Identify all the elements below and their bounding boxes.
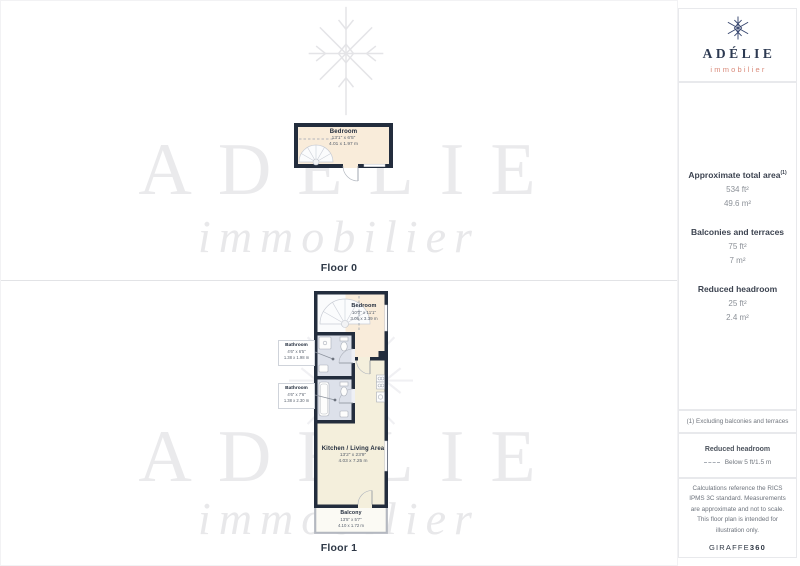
giraffe360-number: 360 (750, 543, 766, 552)
brand-name: ADÉLIE (679, 46, 796, 62)
legend-row: Below 5 ft/1.5 m (704, 459, 772, 466)
reduced-headroom-group: Reduced headroom 25 ft² 2.4 m² (698, 284, 777, 322)
room-dims-ft: 13'5" x 5'7" (314, 517, 388, 522)
legend-box: Reduced headroom Below 5 ft/1.5 m (678, 433, 797, 478)
callout-bathroom2: Bathroom 4'6" x 7'6" 1.38 x 2.30 m (278, 383, 315, 409)
room-dims-m: 4.01 x 1.97 m (294, 142, 393, 147)
reduced-headroom-title: Reduced headroom (698, 284, 777, 294)
room-dims-ft: 10'0" x 11'1" (342, 310, 386, 315)
reduced-headroom-ft: 25 ft² (698, 299, 777, 308)
window (364, 164, 385, 166)
room-label-balcony: Balcony 13'5" x 5'7" 4.10 x 1.72 m (314, 510, 388, 528)
total-area-footnote-marker: (1) (781, 170, 787, 176)
total-area-m: 49.6 m² (688, 199, 786, 208)
floorplan-area: ADÉLIE immobilier (0, 0, 678, 566)
room-name: Bedroom (294, 129, 393, 135)
kitchen-fixtures (377, 375, 385, 402)
room-name: Bedroom (342, 303, 386, 309)
total-area-group: Approximate total area(1) 534 ft² 49.6 m… (688, 170, 786, 208)
balconies-title: Balconies and terraces (691, 227, 784, 237)
reduced-headroom-m: 2.4 m² (698, 313, 777, 322)
room-dims-ft: 13'1" x 6'5" (294, 136, 393, 141)
total-area-title: Approximate total area(1) (688, 170, 786, 180)
room-dims-ft: 4'6" x 6'5" (279, 349, 314, 354)
disclaimer-text: Calculations reference the RICS IPMS 3C … (686, 484, 789, 536)
room-name: Kitchen / Living Area (320, 446, 386, 452)
callout-bathroom1: Bathroom 4'6" x 6'5" 1.38 x 1.98 m (278, 340, 315, 366)
disclaimer-box: Calculations reference the RICS IPMS 3C … (678, 478, 797, 558)
watermark-brand-tagline: immobilier (1, 214, 677, 260)
floor1-panel: ADÉLIE immobilier (1, 282, 677, 566)
room-dims-m: 4.10 x 1.72 m (314, 523, 388, 528)
room-name: Balcony (314, 510, 388, 516)
room-dims-m: 1.38 x 1.98 m (279, 355, 314, 360)
room-name: Bathroom (279, 386, 314, 391)
balconies-group: Balconies and terraces 75 ft² 7 m² (691, 227, 784, 265)
room-label-kitchen-living: Kitchen / Living Area 13'2" x 23'9" 4.03… (320, 446, 386, 464)
floor0-door (343, 164, 358, 181)
dashed-line-icon (704, 462, 720, 463)
balconies-ft: 75 ft² (691, 242, 784, 251)
area-summary-box: Approximate total area(1) 534 ft² 49.6 m… (678, 82, 797, 410)
legend-title: Reduced headroom (705, 446, 770, 453)
room-label-bedroom-floor1: Bedroom 10'0" x 11'1" 3.06 x 3.39 m (342, 303, 386, 321)
floor1-balcony: Balcony 13'5" x 5'7" 4.10 x 1.72 m (314, 508, 388, 534)
room-label-bedroom-floor0: Bedroom 13'1" x 6'5" 4.01 x 1.97 m (294, 129, 393, 147)
brand-logo-box: ADÉLIE immobilier (678, 8, 797, 82)
floorplan-page: ADÉLIE immobilier (0, 0, 800, 566)
bedroom-door-gap (358, 357, 370, 361)
brand-tagline: immobilier (679, 65, 796, 74)
giraffe360-name: GIRAFFE (709, 543, 750, 552)
room-name: Bathroom (279, 343, 314, 348)
floor0-label: Floor 0 (1, 262, 677, 274)
floor1-label: Floor 1 (1, 542, 677, 554)
bathroom2-door-gap (352, 389, 356, 403)
room-dims-m: 3.06 x 3.39 m (342, 316, 386, 321)
footnote-text: (1) Excluding balconies and terraces (687, 418, 789, 425)
bathroom1-door-gap (352, 349, 356, 363)
floor0-panel: ADÉLIE immobilier (1, 1, 677, 281)
room-dims-m: 4.03 x 7.25 m (320, 459, 386, 464)
room-dims-ft: 4'6" x 7'6" (279, 392, 314, 397)
brand-snowflake-icon (725, 15, 751, 41)
giraffe360-brand: GIRAFFE360 (709, 543, 766, 552)
callout-leader-lines (315, 344, 341, 404)
legend-item-text: Below 5 ft/1.5 m (725, 459, 772, 466)
total-area-ft: 534 ft² (688, 185, 786, 194)
balconies-m: 7 m² (691, 256, 784, 265)
room-dims-m: 1.38 x 2.30 m (279, 398, 314, 403)
snowflake-watermark-icon (298, 5, 394, 117)
room-dims-ft: 13'2" x 23'9" (320, 453, 386, 458)
footnote-box: (1) Excluding balconies and terraces (678, 410, 797, 433)
total-area-title-text: Approximate total area (688, 170, 780, 180)
floor0-plan: Bedroom 13'1" x 6'5" 4.01 x 1.97 m (294, 123, 393, 185)
